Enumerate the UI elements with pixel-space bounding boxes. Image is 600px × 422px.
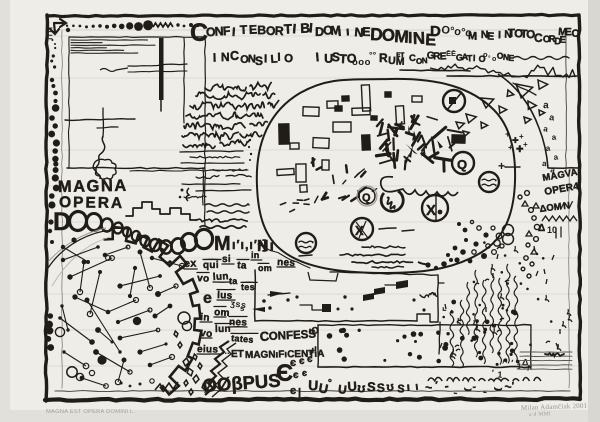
svg-text:+: + [523,140,528,149]
svg-text:MAGNA: MAGNA [58,177,128,196]
svg-text:є: є [290,385,296,397]
svg-text:°: ° [328,378,332,389]
svg-text:lun: lun [215,324,231,335]
svg-text:F: F [222,24,231,38]
svg-text:D: D [430,23,441,40]
svg-text:Q: Q [362,192,371,204]
svg-text:E: E [249,23,258,37]
svg-text:o: o [492,56,496,63]
svg-text:qui: qui [203,260,219,271]
svg-text:in: in [251,250,260,260]
svg-text:X: X [426,202,436,219]
svg-text:є: є [293,370,299,381]
svg-text:tes: tes [241,282,255,292]
svg-text:ex: ex [184,257,198,270]
svg-text:C: C [534,31,543,45]
svg-text:U: U [347,378,357,394]
svg-text:ta: ta [229,276,238,286]
svg-text:e: e [203,290,212,307]
svg-text:ᴇᴛ: ᴇᴛ [396,49,404,59]
svg-text:I: I [213,51,217,65]
svg-text:+: + [508,143,513,152]
svg-text:⌣: ⌣ [493,380,503,396]
svg-text:S: S [397,383,405,396]
svg-text:U: U [308,377,319,393]
svg-text:+: + [505,129,510,139]
svg-text:S: S [367,379,377,395]
svg-text:I: I [474,31,477,43]
svg-text:R: R [379,51,388,65]
svg-text:°°: °° [369,50,377,60]
svg-text:tates: tates [231,333,254,345]
svg-text:′: ′ [492,368,494,378]
svg-text:MAGNA EST OPERA DOMINI L.: MAGNA EST OPERA DOMINI L. [46,409,135,415]
svg-text:M: M [214,233,231,255]
svg-text:O: O [284,53,293,65]
svg-text:S: S [377,381,385,395]
svg-text:є: є [302,368,307,378]
svg-text:ET: ET [231,349,244,360]
svg-text:I: I [498,29,501,41]
svg-text:є: є [299,356,305,367]
svg-text:I: I [473,53,476,63]
svg-text:...: ... [222,346,230,356]
svg-text:N: N [221,50,230,64]
svg-text:ta: ta [237,260,247,272]
svg-text:ĒĒ: ĒĒ [446,49,456,58]
svg-text:a·d·MMI: a·d·MMI [529,411,551,418]
svg-text:T: T [239,23,248,37]
svg-text:C: C [230,49,239,63]
svg-text:E: E [487,30,495,42]
svg-text:⌞: ⌞ [442,302,447,313]
svg-text:O: O [571,28,580,40]
svg-text:om: om [258,263,272,273]
svg-text:I: I [277,52,281,64]
svg-text:+: + [498,159,505,173]
svg-text:C: C [409,53,416,64]
svg-text:U: U [337,382,347,397]
svg-text:Q: Q [457,157,467,172]
svg-text:є: є [307,354,313,365]
svg-text:N: N [412,29,425,48]
svg-text:є: є [290,357,296,369]
svg-text:|: | [298,387,301,399]
svg-text:a: a [543,100,550,111]
svg-text:ʊ: ʊ [357,380,366,395]
svg-text:s: s [240,304,245,313]
svg-text:vo: vo [197,273,210,285]
svg-text:lun: lun [213,271,230,283]
svg-text:°: ° [488,54,491,62]
svg-text:I: I [264,53,267,65]
svg-text:S: S [255,54,263,68]
